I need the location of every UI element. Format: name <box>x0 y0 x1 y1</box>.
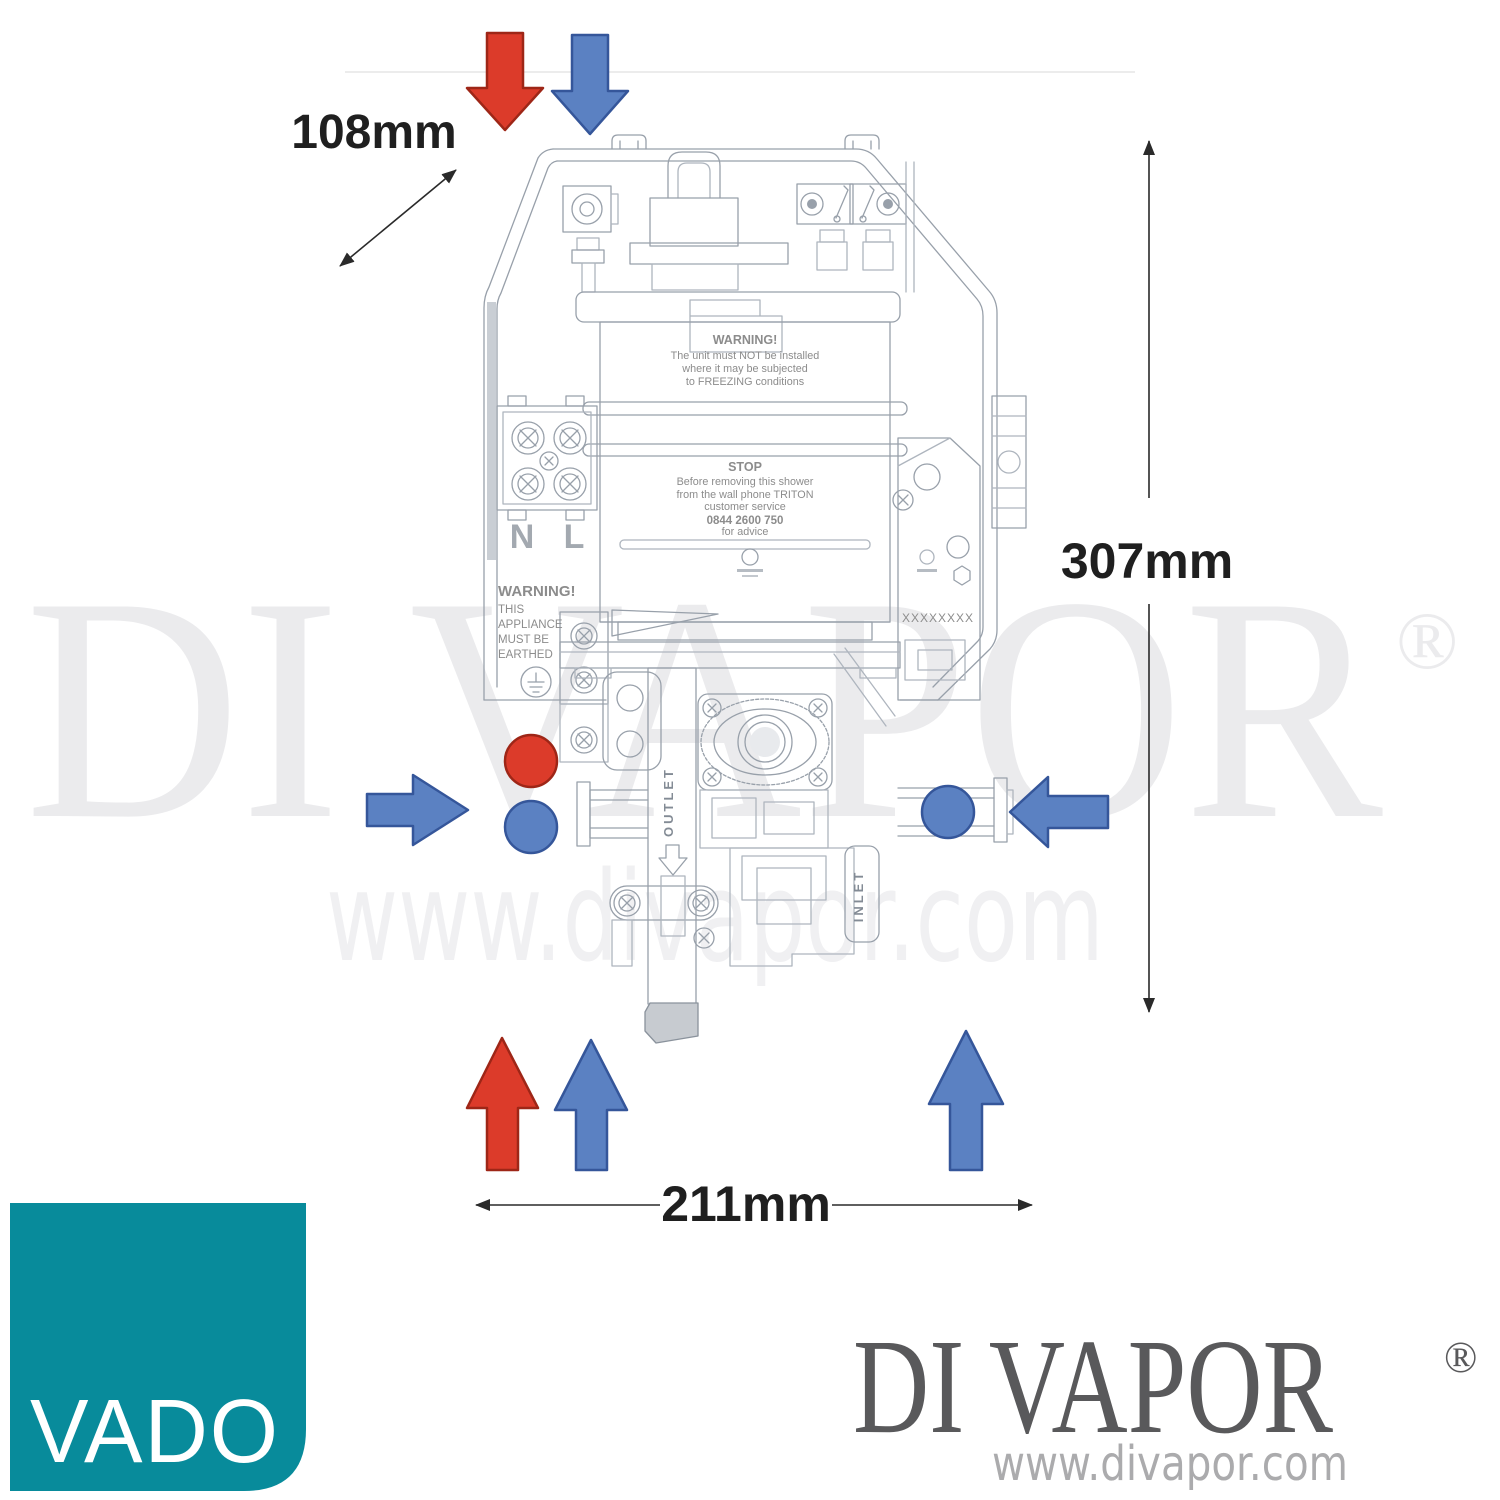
cold-port-dot-right <box>922 786 974 838</box>
dimension-width: 211mm <box>476 1176 1032 1232</box>
serial-placeholder: XXXXXXXX <box>902 611 974 625</box>
freeze-warning-line: where it may be subjected <box>681 363 807 375</box>
earth-warning-title: WARNING! <box>498 583 576 600</box>
earth-warning-line: THIS <box>498 604 525 616</box>
earth-warning-line: MUST BE <box>498 634 549 646</box>
dimension-width-label: 211mm <box>661 1176 831 1232</box>
stop-notice-title: STOP <box>728 460 762 474</box>
stop-notice-line: for advice <box>722 526 769 538</box>
outlet-label: OUTLET <box>661 767 676 837</box>
hot-flow-arrow-bottom <box>467 1038 538 1170</box>
cold-flow-arrow-bottom-right <box>929 1031 1003 1170</box>
stop-notice-line: customer service <box>704 501 786 513</box>
diagram-canvas: DI VAPOR ® www.divapor.com <box>0 0 1500 1500</box>
terminal-l-label: L <box>564 518 585 556</box>
vado-logo: VADO <box>10 1203 306 1491</box>
terminal-block <box>497 396 597 520</box>
divapor-registered-icon: ® <box>1444 1333 1477 1382</box>
stop-notice-line: Before removing this shower <box>677 476 814 488</box>
divapor-logo: DI VAPOR ® www.divapor.com <box>853 1312 1477 1492</box>
hot-flow-arrow-top <box>467 33 543 130</box>
hot-port-dot <box>505 735 557 787</box>
dimension-depth-label: 108mm <box>291 106 456 159</box>
cold-flow-arrow-bottom <box>555 1040 627 1170</box>
watermark-brand: DI VAPOR ® <box>25 532 1458 886</box>
terminal-n-label: N <box>510 518 535 556</box>
outlet-spout-end <box>645 1003 698 1043</box>
freeze-warning-line: to FREEZING conditions <box>686 376 805 388</box>
dimension-height-label: 307mm <box>1061 533 1233 589</box>
cold-port-dot-left <box>505 801 557 853</box>
dimension-depth: 108mm <box>291 106 456 266</box>
watermark-url-text: www.divapor.com <box>326 846 1104 990</box>
product-diagram-page: DI VAPOR ® www.divapor.com <box>0 0 1500 1500</box>
stop-notice-line: from the wall phone TRITON <box>676 489 813 501</box>
cold-flow-arrow-top <box>552 35 628 134</box>
earth-warning-line: EARTHED <box>498 649 553 661</box>
earth-warning-line: APPLIANCE <box>498 619 563 631</box>
freeze-warning-title: WARNING! <box>713 333 778 347</box>
freeze-warning-line: The unit must NOT be installed <box>671 350 820 362</box>
vado-logo-text: VADO <box>30 1382 280 1482</box>
divapor-logo-url: www.divapor.com <box>992 1436 1348 1492</box>
inlet-label: INLET <box>851 870 866 923</box>
watermark-registered-icon: ® <box>1396 595 1458 686</box>
